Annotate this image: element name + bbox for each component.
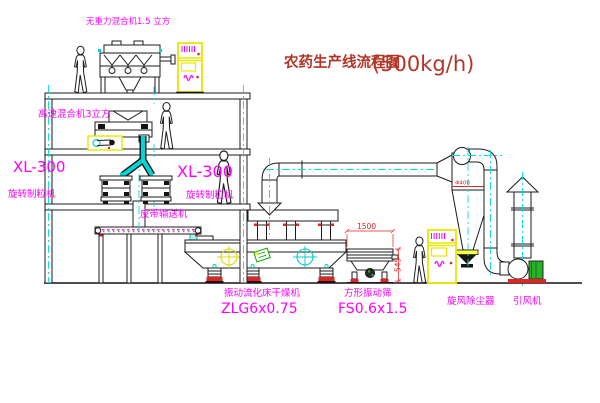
label-vibrating-sieve: 方形振动筛: [344, 287, 392, 299]
process-flow-diagram: 农药生产线流程图 (500kg/h) 无重力混合机1.5 立方 高速混合机3立方…: [0, 0, 600, 403]
person-figure: [161, 103, 173, 150]
duct-stub: [318, 221, 334, 240]
label-belt-conveyor: 皮带输送机: [140, 208, 188, 220]
label-granulator-left-model: XL-300: [13, 158, 65, 176]
label-gravity-free-mixer: 无重力混合机1.5 立方: [86, 16, 170, 27]
granulator-left: [100, 173, 132, 205]
granulator-right: [140, 173, 172, 205]
dim-sieve-height: 545: [394, 257, 403, 272]
label-fluid-bed-dryer-model: ZLG6x0.75: [221, 301, 298, 317]
fluid-bed-dryer: [185, 233, 346, 283]
label-vibrating-sieve-model: FS0.6x1.5: [338, 301, 408, 317]
gravity-free-mixer: [98, 41, 175, 93]
person-figure: [413, 237, 425, 283]
duct-stub: [283, 221, 299, 240]
label-induced-draft-fan: 引风机: [513, 295, 542, 307]
exhaust-duct: [248, 158, 449, 240]
diagram-title-capacity: (500kg/h): [372, 52, 474, 76]
induced-draft-fan: [500, 259, 546, 283]
duct-stub: [254, 221, 270, 240]
label-high-speed-mixer: 高速混合机3立方: [38, 108, 111, 120]
dim-cyclone-dia: Φ400: [455, 181, 470, 187]
label-granulator-left-name: 旋转制粒机: [8, 188, 56, 200]
label-granulator-mid-name: 旋转制粒机: [186, 189, 234, 201]
control-cabinet-top: [176, 43, 204, 93]
person-figure: [75, 46, 87, 92]
diagram-canvas: 农药生产线流程图 (500kg/h) 无重力混合机1.5 立方 高速混合机3立方…: [0, 0, 600, 403]
belt-conveyor: [95, 227, 201, 283]
label-granulator-mid-model: XL-300: [177, 162, 233, 181]
control-cabinet-ground: [428, 230, 456, 283]
label-fluid-bed-dryer: 振动流化床干燥机: [224, 287, 301, 299]
label-cyclone: 旋风除尘器: [447, 295, 495, 307]
dim-sieve-length: 1500: [357, 222, 376, 231]
vibrating-sieve: [347, 249, 398, 283]
